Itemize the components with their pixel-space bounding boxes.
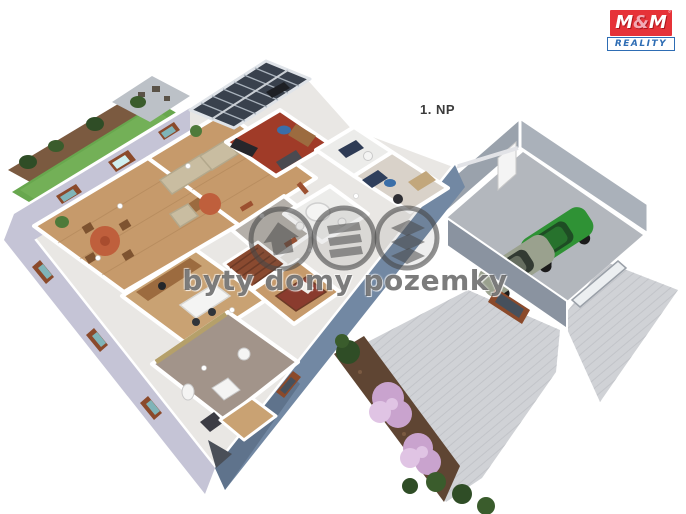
floor-level-label: 1. NP [420,102,455,117]
bush [402,478,418,494]
toilet [338,218,346,226]
toilet [364,152,373,161]
plant [55,216,69,228]
logo-red-box: M&M HOLDING [610,10,672,36]
cooktop [158,282,166,290]
driveway-paving [352,262,678,502]
rug [277,126,291,135]
plant [190,125,202,137]
logo-holding-text: HOLDING [668,0,671,13]
pedestal-sink [238,348,250,360]
toilet [182,384,194,400]
bush [452,484,472,504]
logo-reality-strip: REALITY [607,37,675,51]
logo-reality-text: REALITY [615,40,667,49]
bush [477,497,495,514]
floorplan-render [0,0,686,514]
agency-logo: M&M HOLDING REALITY [607,10,677,51]
stool [208,308,216,316]
logo-m-left: M [615,12,633,33]
rug [384,179,396,187]
bathtub [306,203,330,221]
stool [192,318,200,326]
logo-m-right: M [649,12,667,33]
logo-ampersand: & [633,12,649,33]
bush [426,472,446,492]
coffee-table [199,193,221,215]
round-rug [393,194,403,204]
sink [296,222,304,230]
bush [335,334,349,348]
